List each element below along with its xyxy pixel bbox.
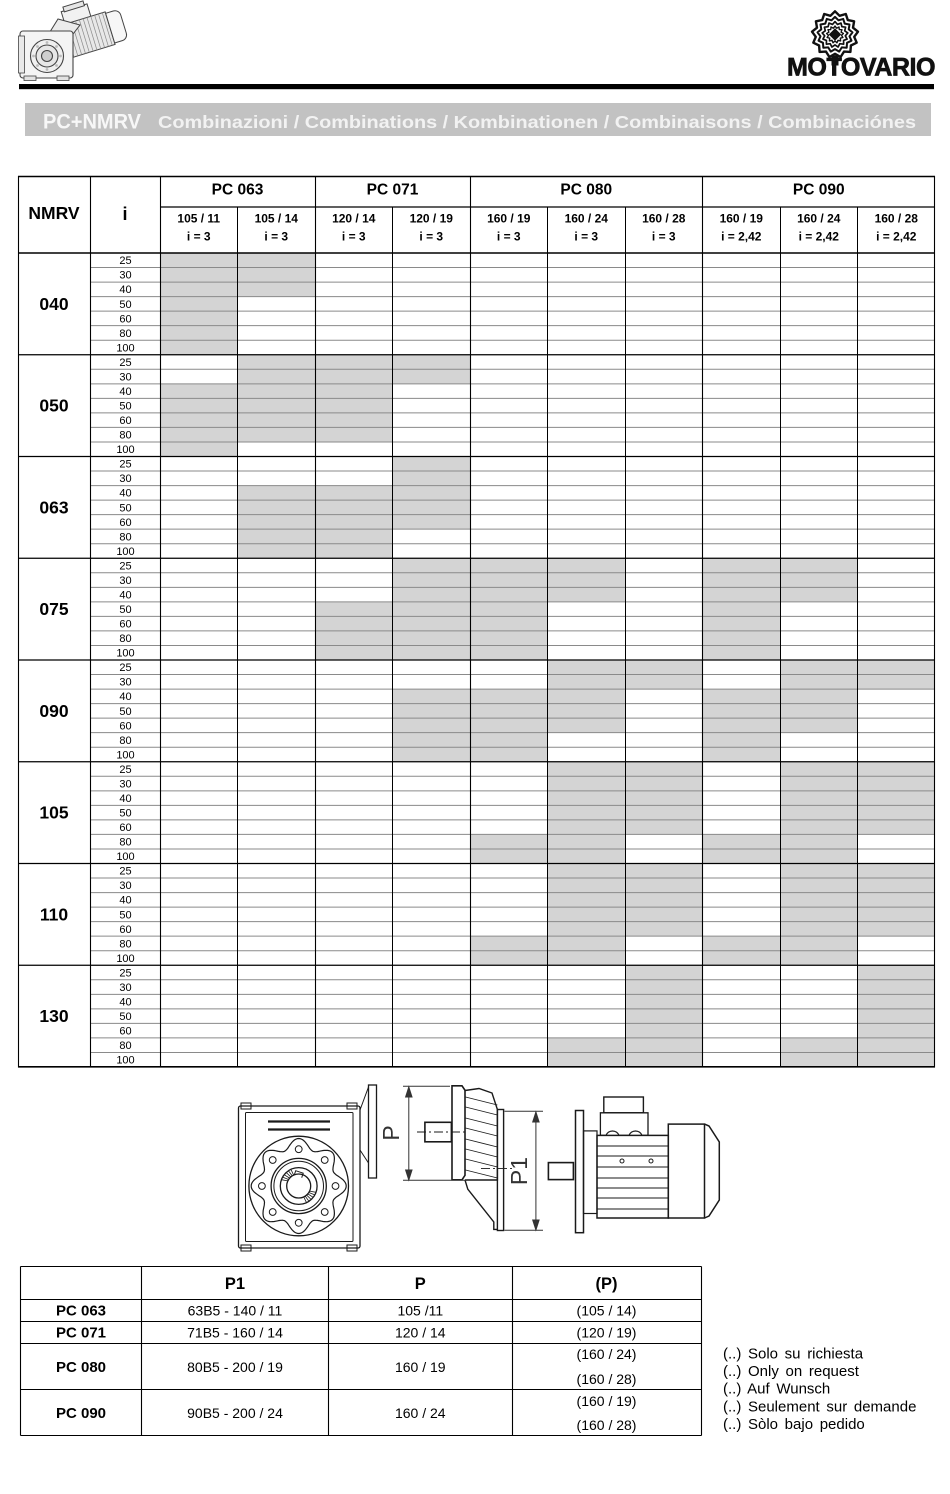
svg-text:25: 25 [119,967,131,979]
svg-text:30: 30 [119,270,131,282]
svg-text:i = 3: i = 3 [652,230,676,244]
svg-text:40: 40 [119,284,131,296]
svg-text:50: 50 [119,401,131,413]
svg-text:PC 063: PC 063 [56,1303,106,1320]
svg-text:(160 / 24): (160 / 24) [577,1346,637,1362]
svg-text:30: 30 [119,575,131,587]
svg-text:25: 25 [119,662,131,674]
svg-text:30: 30 [119,677,131,689]
svg-text:i = 3: i = 3 [574,230,598,244]
svg-text:25: 25 [119,866,131,878]
svg-text:50: 50 [119,706,131,718]
svg-text:40: 40 [119,793,131,805]
svg-text:i = 2,42: i = 2,42 [799,230,840,244]
svg-text:075: 075 [39,599,68,619]
svg-text:160 / 19: 160 / 19 [720,212,764,226]
svg-text:(..) Only on request: (..) Only on request [723,1363,860,1380]
svg-text:(..) Solo su richiesta: (..) Solo su richiesta [723,1346,864,1363]
svg-text:25: 25 [119,764,131,776]
svg-text:050: 050 [39,396,68,416]
svg-text:(..) Sòlo bajo pedido: (..) Sòlo bajo pedido [723,1416,865,1433]
svg-text:P1: P1 [225,1275,245,1293]
svg-text:50: 50 [119,1011,131,1023]
svg-text:80B5 - 200 / 19: 80B5 - 200 / 19 [187,1359,283,1375]
svg-text:PC 071: PC 071 [56,1325,106,1342]
svg-text:PC 080: PC 080 [56,1359,106,1376]
svg-text:25: 25 [119,255,131,267]
svg-text:i = 3: i = 3 [264,230,288,244]
svg-text:P: P [415,1275,426,1293]
svg-text:60: 60 [119,924,131,936]
svg-text:60: 60 [119,720,131,732]
svg-text:100: 100 [116,1055,134,1067]
svg-text:100: 100 [116,444,134,456]
svg-text:090: 090 [39,701,68,721]
svg-text:P1: P1 [506,1157,532,1185]
svg-text:25: 25 [119,560,131,572]
svg-text:40: 40 [119,895,131,907]
svg-text:63B5 - 140 / 11: 63B5 - 140 / 11 [188,1303,283,1319]
svg-text:80: 80 [119,1040,131,1052]
svg-text:80: 80 [119,735,131,747]
svg-text:50: 50 [119,299,131,311]
svg-text:PC 090: PC 090 [56,1405,106,1422]
svg-text:(120 / 19): (120 / 19) [577,1325,637,1341]
svg-text:PC 071: PC 071 [367,182,419,199]
svg-text:063: 063 [39,497,68,517]
svg-text:25: 25 [119,459,131,471]
svg-text:80: 80 [119,531,131,543]
svg-text:(160 / 28): (160 / 28) [577,1417,637,1433]
svg-text:60: 60 [119,415,131,427]
svg-text:100: 100 [116,546,134,558]
svg-text:105: 105 [39,803,68,823]
svg-text:80: 80 [119,633,131,645]
svg-text:105 / 14: 105 / 14 [255,212,299,226]
svg-text:60: 60 [119,1026,131,1038]
svg-text:PC 080: PC 080 [560,182,612,199]
svg-text:60: 60 [119,517,131,529]
svg-text:30: 30 [119,778,131,790]
svg-text:80: 80 [119,938,131,950]
svg-text:(P): (P) [596,1275,618,1293]
svg-text:105 / 11: 105 / 11 [177,212,220,226]
svg-text:120 / 19: 120 / 19 [410,212,454,226]
svg-text:130: 130 [39,1006,68,1026]
svg-text:100: 100 [116,851,134,863]
svg-text:60: 60 [119,313,131,325]
svg-text:120 / 14: 120 / 14 [332,212,376,226]
svg-text:50: 50 [119,808,131,820]
svg-text:PC 090: PC 090 [793,182,845,199]
svg-text:i = 3: i = 3 [187,230,211,244]
svg-text:(160 / 19): (160 / 19) [577,1393,637,1409]
svg-text:110: 110 [40,904,68,924]
svg-text:040: 040 [39,294,68,314]
svg-text:100: 100 [116,648,134,660]
svg-text:i = 3: i = 3 [342,230,366,244]
svg-text:30: 30 [119,982,131,994]
svg-text:i = 2,42: i = 2,42 [876,230,917,244]
svg-text:160 / 19: 160 / 19 [395,1359,446,1375]
svg-text:25: 25 [119,357,131,369]
svg-text:80: 80 [119,328,131,340]
svg-text:MOTOVARIO: MOTOVARIO [787,54,935,82]
svg-text:i: i [122,204,127,224]
svg-text:P: P [378,1125,404,1140]
svg-text:PC+NMRV: PC+NMRV [43,111,141,134]
svg-text:Combinazioni / Combinations /: Combinazioni / Combinations / Kombinatio… [158,112,916,132]
svg-text:160 / 24: 160 / 24 [797,212,841,226]
svg-text:50: 50 [119,604,131,616]
svg-text:i = 2,42: i = 2,42 [721,230,762,244]
svg-text:PC 063: PC 063 [212,182,264,199]
svg-text:30: 30 [119,371,131,383]
svg-text:160 / 19: 160 / 19 [487,212,531,226]
svg-text:40: 40 [119,488,131,500]
svg-text:(105 / 14): (105 / 14) [577,1303,637,1319]
svg-text:50: 50 [119,909,131,921]
svg-text:40: 40 [119,589,131,601]
svg-text:160 / 28: 160 / 28 [875,212,919,226]
svg-text:160 / 24: 160 / 24 [395,1405,446,1421]
svg-text:NMRV: NMRV [28,203,80,223]
svg-text:40: 40 [119,386,131,398]
svg-text:(..) Auf Wunsch: (..) Auf Wunsch [723,1381,830,1398]
svg-text:(..) Seulement sur demande: (..) Seulement sur demande [723,1398,916,1415]
svg-text:40: 40 [119,691,131,703]
svg-text:40: 40 [119,996,131,1008]
svg-text:90B5 - 200 / 24: 90B5 - 200 / 24 [187,1405,283,1421]
svg-text:160 / 24: 160 / 24 [565,212,609,226]
svg-text:100: 100 [116,749,134,761]
svg-text:71B5 - 160 / 14: 71B5 - 160 / 14 [187,1325,283,1341]
svg-text:60: 60 [119,619,131,631]
svg-text:i = 3: i = 3 [419,230,443,244]
svg-text:100: 100 [116,342,134,354]
svg-text:80: 80 [119,430,131,442]
svg-text:160 / 28: 160 / 28 [642,212,686,226]
svg-text:30: 30 [119,473,131,485]
svg-text:i = 3: i = 3 [497,230,521,244]
svg-text:100: 100 [116,953,134,965]
svg-text:120 / 14: 120 / 14 [395,1325,446,1341]
svg-text:(160 / 28): (160 / 28) [577,1371,637,1387]
svg-text:80: 80 [119,837,131,849]
svg-text:50: 50 [119,502,131,514]
svg-text:30: 30 [119,880,131,892]
svg-text:105 /11: 105 /11 [397,1303,443,1319]
svg-text:60: 60 [119,822,131,834]
